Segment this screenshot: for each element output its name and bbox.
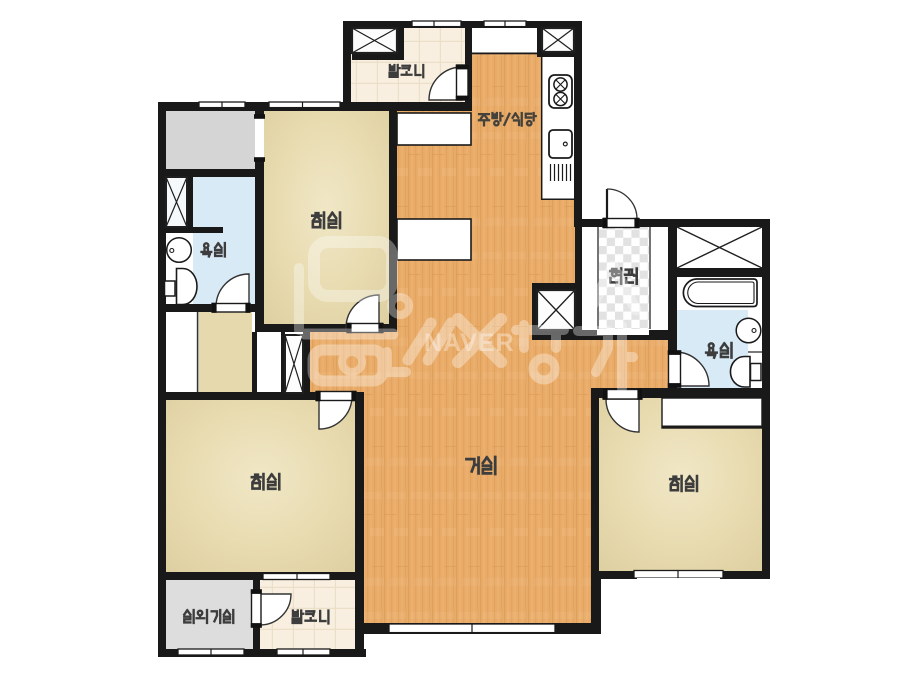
svg-text:NAVER: NAVER [424,329,515,357]
